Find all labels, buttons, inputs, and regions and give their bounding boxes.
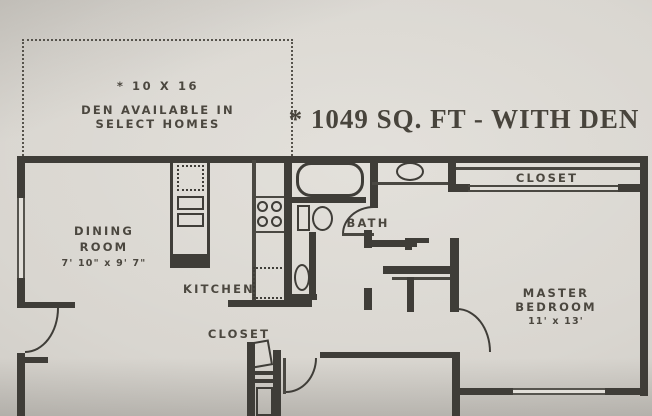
kitchen-sink-basin-left bbox=[177, 196, 204, 210]
wall-entry-closet-right bbox=[273, 350, 281, 416]
den-note-line2: SELECT HOMES bbox=[96, 117, 221, 131]
stove-burner-4 bbox=[271, 216, 282, 227]
entry-closet-shelf-b bbox=[255, 379, 273, 383]
entry-door-arc bbox=[286, 358, 317, 393]
toilet bbox=[294, 264, 310, 291]
floor-plan: * 10 X 16 DEN AVAILABLE IN SELECT HOMES … bbox=[0, 0, 652, 416]
entry-closet-label: CLOSET bbox=[208, 327, 270, 341]
wall-hall-master bbox=[450, 238, 459, 312]
stove-top-edge bbox=[256, 196, 284, 198]
wall-toilet-nook bbox=[309, 232, 316, 294]
wall-left-lower bbox=[17, 353, 25, 416]
master-closet-label: CLOSET bbox=[516, 171, 578, 185]
dining-room-label-line2: ROOM bbox=[80, 240, 129, 254]
stove-burner-2 bbox=[271, 201, 282, 212]
entry-closet-shelf-a bbox=[255, 371, 273, 375]
closet-shelf-line bbox=[456, 167, 640, 170]
stove-burner-1 bbox=[257, 201, 268, 212]
plan-title: * 1049 SQ. FT - WITH DEN bbox=[289, 104, 640, 135]
master-bedroom-label-line2: BEDROOM bbox=[515, 300, 596, 314]
closet-door-stub-left bbox=[448, 184, 470, 192]
wall-under-tub bbox=[292, 197, 366, 203]
linen-shelf-line bbox=[392, 277, 450, 280]
stove-bottom-edge bbox=[256, 231, 284, 233]
hall-vanity-sink bbox=[396, 162, 424, 181]
entry-closet-inner bbox=[256, 387, 273, 416]
kitchen-sink-basin-right bbox=[177, 213, 204, 227]
master-bedroom-dimensions: 11' x 13' bbox=[528, 316, 584, 327]
master-bedroom-label-line1: MASTER bbox=[523, 286, 589, 300]
dishwasher bbox=[177, 165, 204, 191]
window-dining bbox=[17, 198, 25, 280]
wall-right bbox=[640, 156, 648, 396]
window-master-bedroom bbox=[513, 388, 605, 395]
refrigerator bbox=[253, 267, 286, 299]
bath-sink bbox=[312, 206, 333, 231]
wall-linen-stub-v bbox=[405, 238, 412, 250]
kitchen-island-base bbox=[170, 254, 210, 268]
closet-sliding-door bbox=[468, 185, 620, 192]
wall-linen-top bbox=[383, 266, 459, 274]
master-door-arc bbox=[457, 308, 491, 352]
wall-linen-left bbox=[407, 277, 414, 312]
kitchen-label: KITCHEN bbox=[183, 282, 255, 296]
wall-entry-closet-left bbox=[247, 342, 255, 416]
closet-door-stub-right bbox=[618, 184, 642, 192]
hall-vanity-counter-edge bbox=[372, 182, 450, 185]
stove-burner-3 bbox=[257, 216, 268, 227]
dining-room-label-line1: DINING bbox=[74, 224, 134, 238]
wall-hall-stub bbox=[364, 288, 372, 310]
den-note-line1: DEN AVAILABLE IN bbox=[81, 103, 235, 117]
wall-kitchen-bottom bbox=[228, 300, 312, 307]
dining-room-dimensions: 7' 10" x 9' 7" bbox=[62, 258, 147, 269]
wall-hall-bottom bbox=[320, 352, 458, 358]
wall-master-left bbox=[452, 352, 460, 416]
wall-toilet-nook-bottom bbox=[292, 294, 317, 300]
patio-door-arc bbox=[25, 308, 59, 353]
den-size-label: * 10 X 16 bbox=[117, 79, 199, 93]
bath-vanity-counter bbox=[297, 205, 310, 231]
den-option-dashed-outline bbox=[22, 39, 293, 160]
wall-left-upper bbox=[17, 156, 25, 200]
bathtub bbox=[296, 162, 364, 197]
